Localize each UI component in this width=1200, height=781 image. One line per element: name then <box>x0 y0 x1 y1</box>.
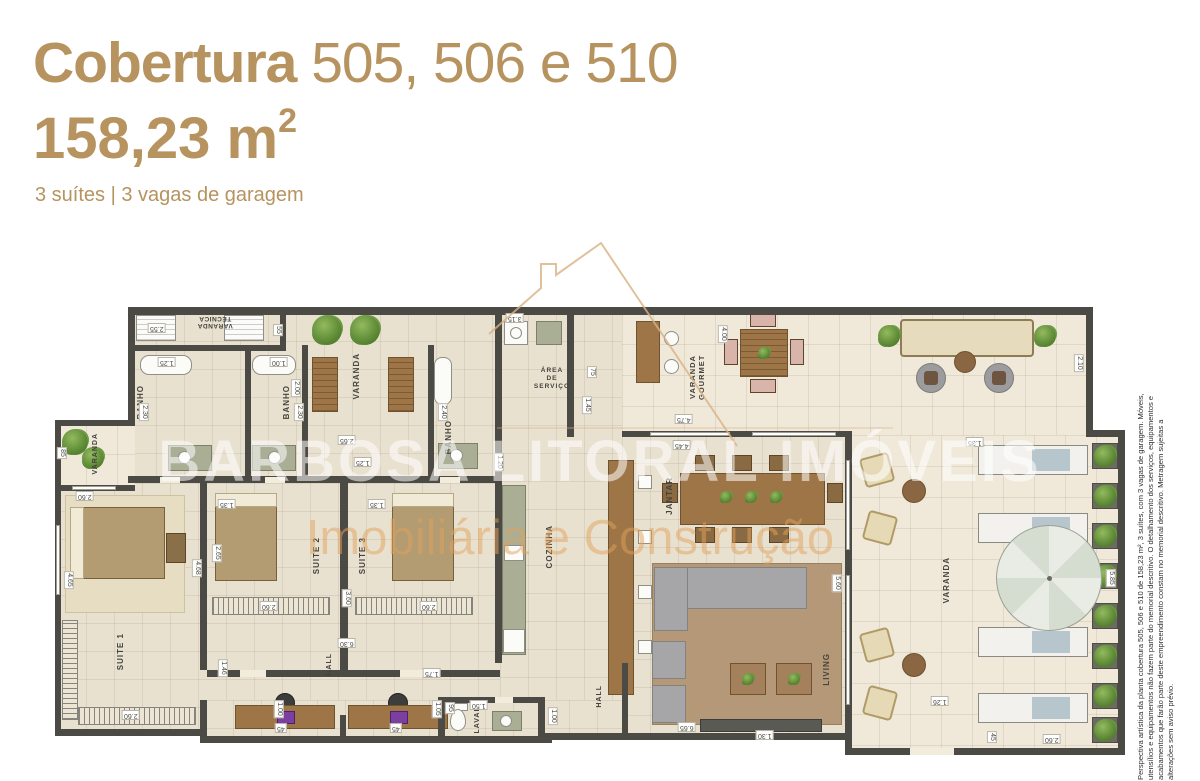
dimension-label: 4.65 <box>64 571 74 589</box>
living-sofa <box>685 567 807 609</box>
title-units: 505, 506 e 510 <box>296 31 677 95</box>
dimension-label: 1.00 <box>548 707 558 725</box>
plant <box>1094 485 1116 507</box>
dimension-label: 2.65 <box>212 544 222 562</box>
dimension-label: 4.45 <box>673 440 691 450</box>
wall-top <box>128 307 1093 315</box>
door-gap <box>910 748 954 755</box>
bar-stool <box>638 475 652 489</box>
room-label-varanda-tecnica: VARANDA TÉCNICA <box>170 315 260 329</box>
door-gap <box>265 477 285 483</box>
dimension-label: 2.60 <box>420 601 438 611</box>
towel <box>1032 449 1070 471</box>
living-armchair <box>652 641 686 679</box>
window-glass-door <box>846 575 850 705</box>
dimension-label: 2.60 <box>76 491 94 501</box>
wall-kitchen-left-lower <box>495 483 502 663</box>
wall-varanda-left-top <box>55 420 135 426</box>
bar-stool <box>664 331 679 346</box>
gourmet-chair <box>724 339 738 365</box>
dimension-label: 1.35 <box>368 499 386 509</box>
dimension-label: 2.60 <box>122 710 140 720</box>
page: Cobertura 505, 506 e 510 158,23 m2 3 suí… <box>0 0 1200 781</box>
towel <box>1032 697 1070 719</box>
door-gap <box>160 477 180 483</box>
bench <box>312 357 338 412</box>
umbrella <box>996 525 1102 631</box>
chair-cushion <box>992 371 1006 385</box>
room-label-jantar: JANTAR <box>665 477 674 515</box>
wall-vt-bottom <box>128 345 285 351</box>
dining-chair <box>827 483 843 503</box>
disclaimer-text: Perspectiva artística da planta cobertur… <box>1136 383 1180 780</box>
gourmet-chair <box>790 339 804 365</box>
dimension-label: 2.40 <box>438 403 448 421</box>
dimension-label: 55 <box>273 324 283 336</box>
plant <box>1094 645 1116 667</box>
room-label-cozinha: COZINHA <box>545 525 554 568</box>
dimension-label: 2.00 <box>291 379 301 397</box>
plant <box>1094 685 1116 707</box>
table-plant <box>758 347 770 359</box>
window-glass-door <box>846 460 850 550</box>
wall-lavabo-right <box>538 697 545 743</box>
dimension-label: 1.00 <box>274 700 284 718</box>
plant <box>312 315 342 345</box>
subtitle: 3 suítes | 3 vagas de garagem <box>35 184 304 207</box>
towel <box>1032 631 1070 653</box>
dimension-label: 3.60 <box>342 589 352 607</box>
plant <box>1034 325 1056 347</box>
dining-chair <box>769 455 789 471</box>
page-title: Cobertura 505, 506 e 510 <box>33 30 678 96</box>
area-exponent: 2 <box>278 102 297 140</box>
suite1-armchair <box>166 533 186 563</box>
dimension-label: 1.20 <box>494 453 504 471</box>
bar-stool <box>638 530 652 544</box>
bathtub <box>434 357 452 405</box>
sink <box>268 451 281 464</box>
gourmet-bar <box>636 321 660 383</box>
dimension-label: 45 <box>987 731 997 743</box>
dimension-label: 2.65 <box>338 435 356 445</box>
dimension-label: 4.00 <box>718 325 728 343</box>
suite1-bed <box>70 507 165 579</box>
dimension-label: 85 <box>57 447 67 459</box>
door-gap <box>495 697 513 703</box>
table-plant <box>788 673 800 685</box>
table-plant <box>742 673 754 685</box>
dimension-label: 1.35 <box>218 499 236 509</box>
title-bold: Cobertura <box>33 31 296 95</box>
door-gap <box>440 477 460 483</box>
plant <box>878 325 900 347</box>
kitchen-bar <box>608 460 634 695</box>
kitchen-sink <box>504 545 524 561</box>
living-sofa-corner <box>654 567 688 631</box>
window-glass-door <box>752 432 836 436</box>
dimension-label: 1.46 <box>218 659 228 677</box>
side-table <box>954 351 976 373</box>
dimension-label: 5.60 <box>832 574 842 592</box>
dimension-label: 95 <box>445 702 455 714</box>
dimension-label: 2.10 <box>1074 354 1084 372</box>
plant <box>350 315 380 345</box>
room-label-suite1: SUITE 1 <box>116 633 125 670</box>
dimension-label: 1.45 <box>582 396 592 414</box>
room-label-hall2: HALL <box>596 685 603 708</box>
chair-cushion <box>924 371 938 385</box>
dimension-label: 75 <box>587 366 597 378</box>
dimension-label: 1.25 <box>354 457 372 467</box>
plant <box>1094 445 1116 467</box>
dimension-label: 2.55 <box>148 323 166 333</box>
dimension-label: 45 <box>390 723 402 733</box>
dimension-label: 1.05 <box>432 700 442 718</box>
service-sink <box>536 321 562 345</box>
dimension-label: 1.30 <box>756 730 774 740</box>
window <box>56 525 60 595</box>
side-table <box>902 479 926 503</box>
dimension-label: 6.65 <box>678 722 696 732</box>
room-label-varanda-left: VARANDA <box>92 433 99 474</box>
table-plant <box>720 491 732 503</box>
window-glass-door <box>650 432 730 436</box>
dimension-label: 1.35 <box>966 437 984 447</box>
dimension-label: 1.00 <box>270 357 288 367</box>
room-label-living: LIVING <box>822 653 831 686</box>
dimension-label: 1.26 <box>931 696 949 706</box>
sink <box>500 715 512 727</box>
wall-suite1-bottom <box>55 729 207 736</box>
table-plant <box>745 491 757 503</box>
wall-right-upper <box>1086 307 1093 437</box>
wall-desk-step <box>200 700 207 736</box>
gourmet-chair <box>750 379 776 393</box>
dimension-label: 1.25 <box>158 357 176 367</box>
bar-stool <box>638 585 652 599</box>
wall-terrace-bottom <box>845 748 1125 755</box>
room-label-varanda-top: VARANDA <box>352 353 361 399</box>
dimension-label: 45 <box>275 723 287 733</box>
dimension-label: 2.60 <box>1043 734 1061 744</box>
dining-chair <box>732 527 752 543</box>
bench <box>388 357 414 412</box>
pillow <box>70 507 84 579</box>
dimension-label: 4.68 <box>192 559 202 577</box>
fridge <box>503 629 525 653</box>
dimension-label: 5.85 <box>1106 569 1116 587</box>
side-table <box>902 653 926 677</box>
wall-desk-bottom <box>200 736 552 743</box>
room-label-hall1: HALL <box>326 653 333 676</box>
plant <box>1094 719 1116 741</box>
door-gap <box>240 670 266 677</box>
dimension-label: 1.50 <box>470 700 488 710</box>
dining-chair <box>732 455 752 471</box>
dimension-label: 6.30 <box>338 638 356 648</box>
gourmet-chair <box>750 313 776 327</box>
room-label-suite2: SUITE 2 <box>312 537 321 574</box>
dining-chair <box>769 527 789 543</box>
room-label-suite3: SUITE 3 <box>358 537 367 574</box>
wall-banho3-left <box>428 345 434 483</box>
room-label-varanda-right: VARANDA <box>942 557 951 603</box>
dimension-label: 4.75 <box>675 414 693 424</box>
plant <box>1094 525 1116 547</box>
room-label-varanda-gourmet: VARANDA GOURMET <box>688 337 710 417</box>
table-plant <box>770 491 782 503</box>
dining-chair <box>695 455 715 471</box>
dimension-label: 1.75 <box>423 668 441 678</box>
area-number: 158,23 m <box>33 106 278 171</box>
plant <box>1094 605 1116 627</box>
dimension-label: 2.30 <box>294 403 304 421</box>
dimension-label: 3.15 <box>506 313 524 323</box>
wall-left-upper <box>128 307 135 425</box>
dining-chair <box>695 527 715 543</box>
wall-banho-divider <box>245 345 251 483</box>
room-label-banho3: BANHO <box>444 420 453 454</box>
washer-door <box>510 327 522 339</box>
window <box>72 486 116 490</box>
room-label-area-servico: ÁREA DE SERVIÇO <box>530 367 574 391</box>
dimension-label: 2.30 <box>139 403 149 421</box>
wall-living-bottom <box>545 733 852 740</box>
dimension-label: 2.60 <box>260 601 278 611</box>
wall-right-lower <box>1118 430 1125 755</box>
bar-stool <box>638 640 652 654</box>
pillow <box>392 493 454 507</box>
bar-stool <box>664 359 679 374</box>
wall-desk-divider <box>340 715 346 743</box>
sink <box>178 451 191 464</box>
suite3-wardrobe <box>355 597 473 615</box>
floor-plan: VARANDA TÉCNICA BANHO BANHO BANHO VARAND… <box>40 245 1140 765</box>
wall-hall2-left <box>622 663 628 737</box>
room-label-banho2: BANHO <box>282 385 291 419</box>
living-armchair <box>652 685 686 723</box>
area-value: 158,23 m2 <box>33 102 297 172</box>
suite1-closet <box>62 620 78 720</box>
